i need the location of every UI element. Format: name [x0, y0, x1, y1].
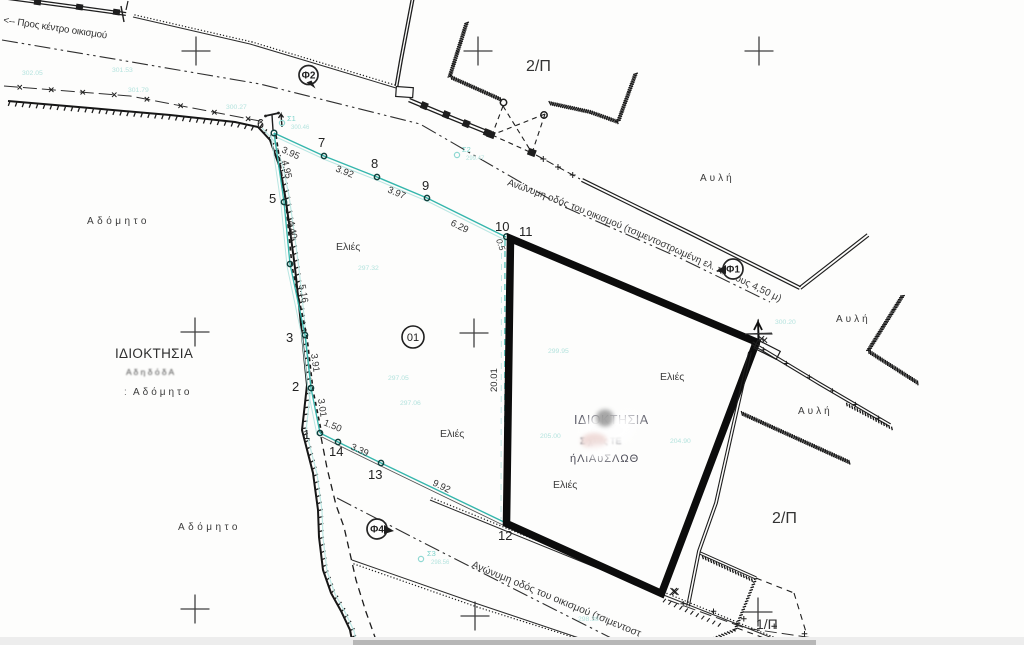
svg-text::: :	[124, 387, 127, 398]
svg-text:Φ4: Φ4	[370, 525, 384, 536]
svg-text:12: 12	[498, 528, 512, 543]
svg-text:299.47: 299.47	[466, 156, 485, 162]
svg-text:298.38: 298.38	[578, 616, 599, 623]
svg-text:300.27: 300.27	[226, 104, 247, 111]
svg-text:Αυλή: Αυλή	[798, 405, 833, 417]
svg-text:300.20: 300.20	[775, 319, 796, 326]
svg-text:205.00: 205.00	[540, 433, 561, 440]
svg-text:Αδόμητο: Αδόμητο	[178, 521, 241, 533]
svg-text:13: 13	[368, 467, 382, 482]
svg-text:Αυλή: Αυλή	[836, 313, 871, 325]
svg-text:6: 6	[257, 117, 264, 131]
svg-text:299.95: 299.95	[548, 348, 569, 355]
svg-text:300.46: 300.46	[291, 125, 310, 131]
svg-text:301.79: 301.79	[128, 87, 149, 94]
svg-text:2: 2	[292, 379, 299, 394]
svg-text:Αδόμητο: Αδόμητο	[87, 215, 150, 227]
svg-text:204.90: 204.90	[670, 438, 691, 445]
svg-text:Ελιές: Ελιές	[440, 428, 464, 440]
svg-text:1/Π: 1/Π	[756, 616, 778, 632]
svg-text:Α δ η δ ό δ Α: Α δ η δ ό δ Α	[126, 367, 175, 377]
svg-text:ΙΔΙΟΚΤΗΣΙΑ: ΙΔΙΟΚΤΗΣΙΑ	[115, 346, 193, 361]
svg-text:297.32: 297.32	[358, 265, 379, 272]
svg-text:Αυλή: Αυλή	[700, 172, 735, 184]
svg-text:298.56: 298.56	[431, 560, 450, 566]
svg-text:14: 14	[329, 444, 343, 459]
svg-text:11: 11	[519, 224, 533, 239]
svg-text:01: 01	[407, 332, 419, 344]
svg-text:301.53: 301.53	[112, 67, 133, 74]
svg-text:Ελιές: Ελιές	[660, 371, 684, 383]
svg-text:297.05: 297.05	[388, 375, 409, 382]
svg-text:8: 8	[371, 156, 378, 171]
svg-text:2/Π: 2/Π	[772, 510, 797, 527]
svg-text:Σ3: Σ3	[427, 549, 436, 558]
svg-text:Σ1: Σ1	[287, 114, 296, 123]
svg-text:10: 10	[495, 219, 509, 234]
svg-text:3: 3	[286, 330, 293, 345]
svg-text:Φ2: Φ2	[302, 71, 316, 82]
svg-text:7: 7	[318, 135, 325, 150]
svg-text:20.01: 20.01	[489, 368, 500, 392]
svg-text:297.06: 297.06	[400, 400, 421, 407]
svg-text:Ελιές: Ελιές	[336, 241, 360, 253]
svg-text:2/Π: 2/Π	[526, 58, 551, 75]
svg-text:Σ2: Σ2	[462, 145, 471, 154]
svg-text:302.05: 302.05	[22, 70, 43, 77]
svg-text:Αδόμητο: Αδόμητο	[133, 386, 193, 398]
svg-text:5: 5	[269, 191, 276, 206]
svg-text:9: 9	[422, 178, 429, 193]
svg-text:Φ1: Φ1	[726, 265, 740, 276]
svg-text:1: 1	[303, 427, 310, 442]
svg-text:Ελιές: Ελιές	[553, 479, 577, 491]
